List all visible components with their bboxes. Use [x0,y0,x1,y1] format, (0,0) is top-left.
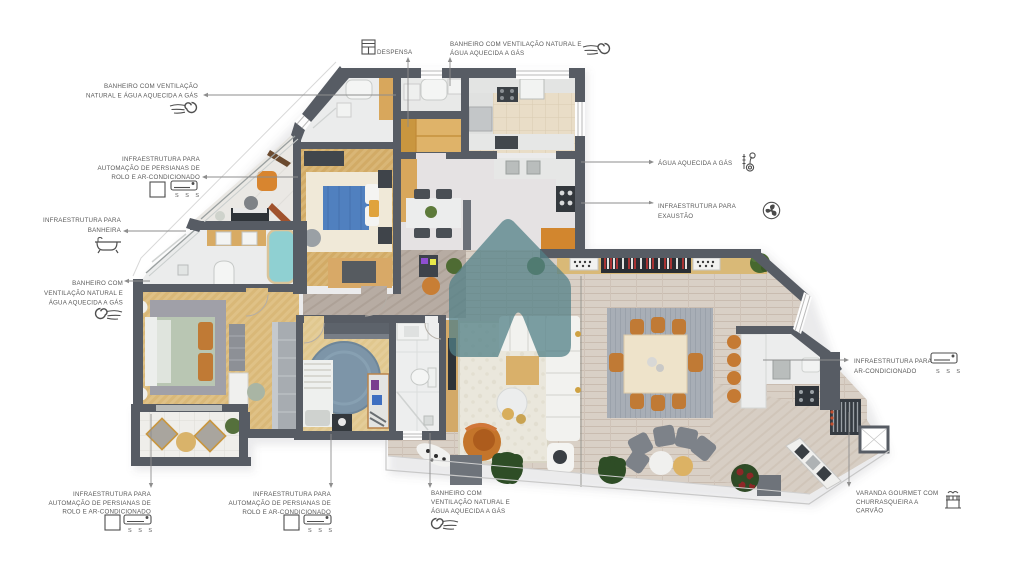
svg-text:EXAUSTÃO: EXAUSTÃO [658,213,693,220]
svg-text:S S S: S S S [308,528,335,534]
svg-text:ÁGUA AQUECIDA A GÁS: ÁGUA AQUECIDA A GÁS [450,50,524,57]
svg-text:AUTOMAÇÃO DE PERSIANAS DE: AUTOMAÇÃO DE PERSIANAS DE [97,165,200,172]
svg-text:BANHEIRO COM: BANHEIRO COM [72,280,123,287]
svg-text:DESPENSA: DESPENSA [377,49,413,56]
svg-text:S S S: S S S [936,369,963,375]
svg-text:VENTILAÇÃO NATURAL E: VENTILAÇÃO NATURAL E [44,290,123,297]
svg-text:INFRAESTRUTURA PARA: INFRAESTRUTURA PARA [854,358,933,365]
svg-text:S S S: S S S [175,193,202,199]
svg-text:CARVÃO: CARVÃO [856,508,883,515]
svg-text:INFRAESTRUTURA PARA: INFRAESTRUTURA PARA [122,156,201,163]
svg-text:AUTOMAÇÃO DE PERSIANAS DE: AUTOMAÇÃO DE PERSIANAS DE [228,500,331,507]
svg-text:ÁGUA AQUECIDA A GÁS: ÁGUA AQUECIDA A GÁS [431,508,505,515]
svg-text:BANHEIRO COM VENTILAÇÃO NATURA: BANHEIRO COM VENTILAÇÃO NATURAL E [450,41,582,48]
svg-text:ROLO E AR-CONDICIONADO: ROLO E AR-CONDICIONADO [111,174,200,181]
svg-text:INFRAESTRUTURA PARA: INFRAESTRUTURA PARA [253,491,332,498]
svg-text:ÁGUA AQUECIDA A GÁS: ÁGUA AQUECIDA A GÁS [658,160,732,167]
svg-text:VENTILAÇÃO NATURAL E: VENTILAÇÃO NATURAL E [431,499,510,506]
svg-text:S S S: S S S [128,528,155,534]
svg-text:BANHEIRO COM: BANHEIRO COM [431,490,482,497]
svg-text:ÁGUA AQUECIDA A GÁS: ÁGUA AQUECIDA A GÁS [49,300,123,307]
svg-text:NATURAL E ÁGUA AQUECIDA A GÁS: NATURAL E ÁGUA AQUECIDA A GÁS [86,93,198,100]
svg-text:BANHEIRA: BANHEIRA [88,227,122,234]
svg-text:AR-CONDICIONADO: AR-CONDICIONADO [854,368,916,375]
svg-text:INFRAESTRUTURA PARA: INFRAESTRUTURA PARA [73,491,152,498]
svg-text:INFRAESTRUTURA PARA: INFRAESTRUTURA PARA [658,203,737,210]
svg-text:BANHEIRO COM VENTILAÇÃO: BANHEIRO COM VENTILAÇÃO [104,83,198,90]
svg-text:CHURRASQUEIRA A: CHURRASQUEIRA A [856,499,919,506]
svg-text:VARANDA GOURMET COM: VARANDA GOURMET COM [856,490,938,497]
svg-text:AUTOMAÇÃO DE PERSIANAS DE: AUTOMAÇÃO DE PERSIANAS DE [48,500,151,507]
svg-text:INFRAESTRUTURA PARA: INFRAESTRUTURA PARA [43,217,122,224]
